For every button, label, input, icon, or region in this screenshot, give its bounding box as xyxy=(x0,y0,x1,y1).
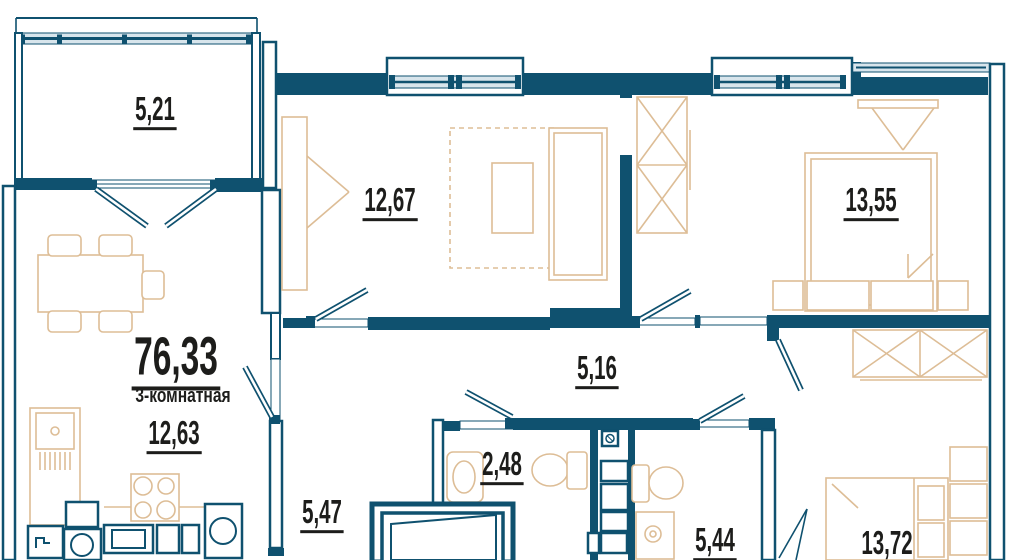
room-label-hallway: 5,16 xyxy=(575,351,619,389)
apartment-type-label: 3-комнатная xyxy=(135,386,230,406)
tv xyxy=(858,100,938,108)
hallway-wardrobe xyxy=(853,330,987,380)
room-label-bathroom: 2,48 xyxy=(480,447,524,485)
bedroom1-furniture xyxy=(282,117,607,290)
toilet xyxy=(649,467,683,499)
room-label-corridor: 5,47 xyxy=(300,495,344,533)
toilet xyxy=(532,454,568,486)
room-label-bedroom1: 12,67 xyxy=(363,183,418,221)
entrance-door xyxy=(372,504,513,560)
room-label-kitchen: 12,63 xyxy=(147,416,202,454)
vent-icon xyxy=(602,431,618,446)
dining-table xyxy=(38,235,164,332)
total-area-label: 76,33 xyxy=(132,329,221,390)
room-label-bedroom2: 13,55 xyxy=(844,183,899,221)
room-label-wc: 5,44 xyxy=(693,523,737,560)
stove xyxy=(131,474,179,521)
room-label-bedroom3: 13,72 xyxy=(860,526,915,560)
bedroom2-furniture xyxy=(637,97,968,311)
bedroom1-window xyxy=(387,58,523,95)
wc-fixtures xyxy=(632,465,683,559)
room-label-balcony: 5,21 xyxy=(133,92,177,130)
floor-plan: 5,21 12,67 13,55 76,33 3-комнатная 12,63… xyxy=(0,0,1024,560)
bedroom2-window xyxy=(712,58,852,95)
